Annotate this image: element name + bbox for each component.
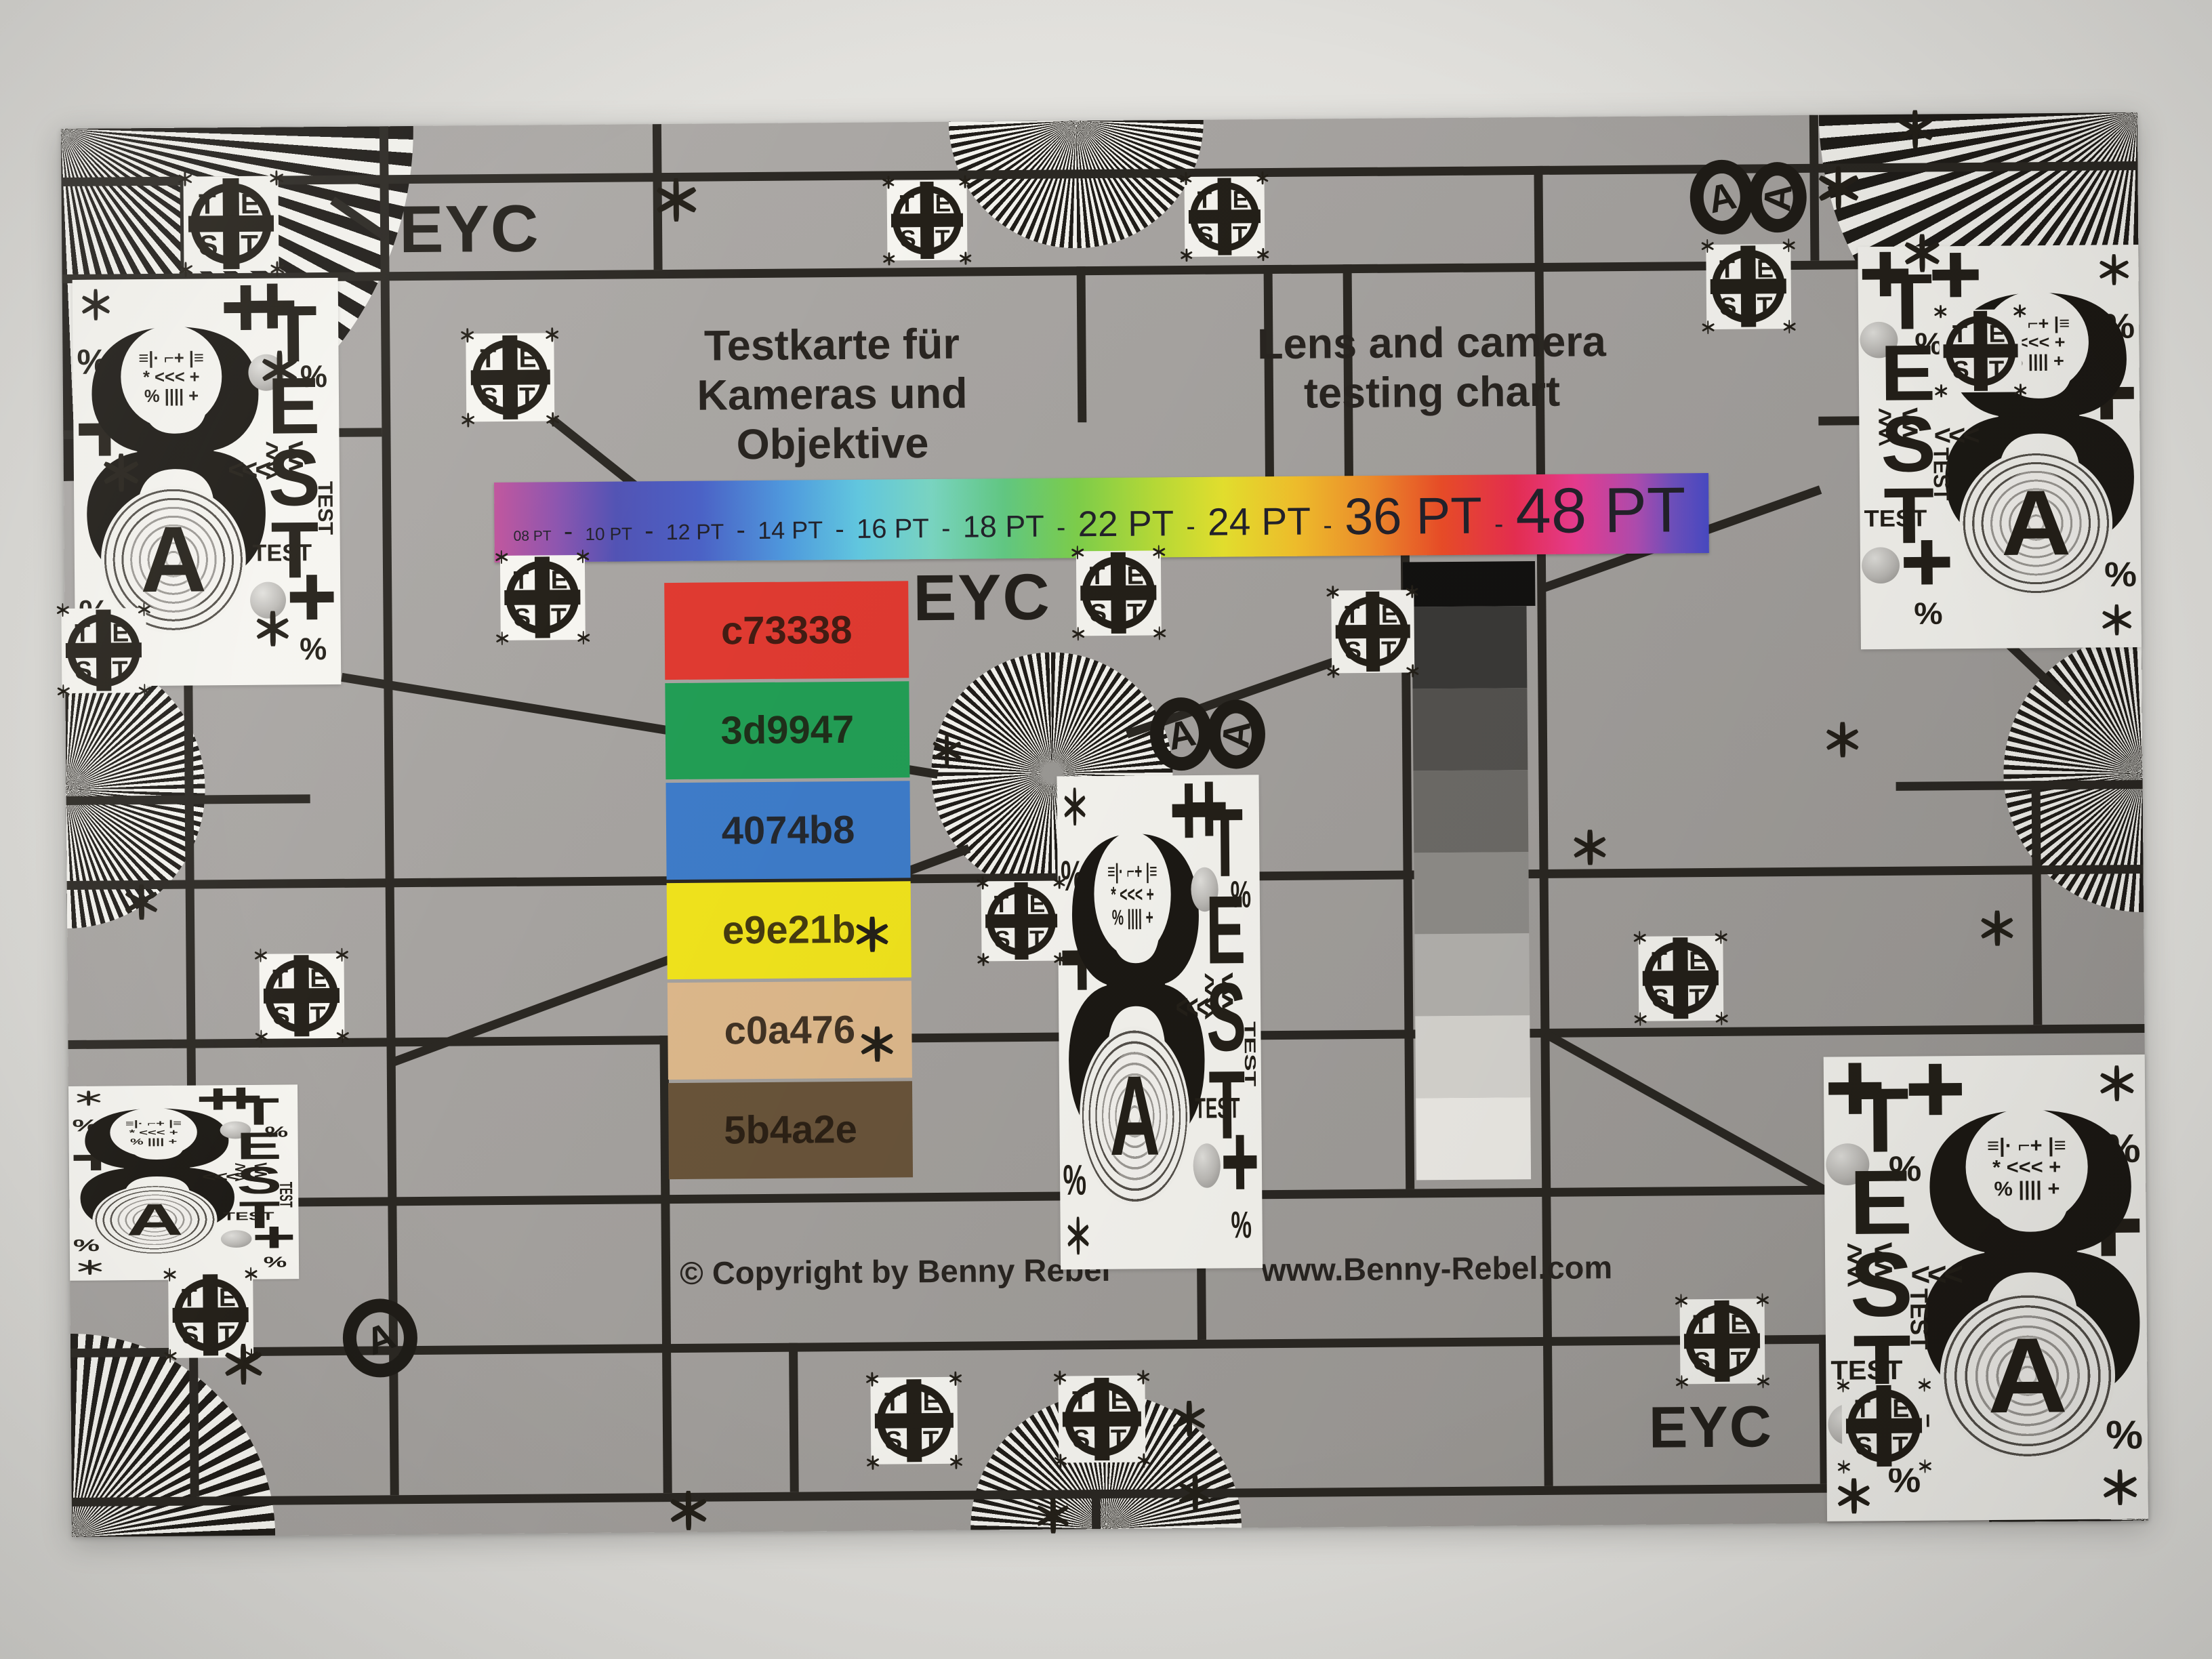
asterisk-mark [268,170,284,186]
letter-a: A [129,506,218,614]
logo-letter: S [1197,222,1214,249]
percent-mark: % [1231,1202,1252,1247]
asterisk-mark [1054,1454,1068,1469]
logo-letter: E [310,964,327,993]
siemens-fan-top-center [949,120,1204,249]
logo-letter: E [1232,186,1248,213]
logo-letter: E [518,344,536,373]
grid-line [789,1343,799,1492]
gray-sphere [1193,1143,1221,1188]
test-circle-logo: T E S T [1939,309,2022,392]
asterisk-mark [495,550,508,564]
asterisk-mark [1071,627,1085,640]
asterisk-mark [1071,546,1084,559]
asterisk-mark [960,252,972,265]
down-arrows: vvv [1217,972,1240,1012]
mini-eight-top-right: A A [1689,159,1807,236]
pt-label: 22 PT [1078,503,1174,545]
resolution-block-center: % % 8 ≡|· ⌐+ |≡ * <<< + % |||| + A <<< %… [1057,775,1263,1269]
logo-letter: E [241,188,260,220]
color-swatch-brown: 5b4a2e [668,1081,913,1179]
logo-letter: T [1029,926,1044,954]
logo-letter: T [75,618,90,647]
asterisk-mark [56,603,69,617]
asterisk-mark [335,1029,349,1043]
test-column: % T E S T ^^^ vvv TEST TEST % [218,1084,299,1279]
letter-a: A [117,1193,193,1246]
logo-letter: T [310,1001,326,1030]
logo-letter: T [1072,1387,1088,1416]
pt-label: 08 PT [514,528,552,544]
resolution-block: % % 8 ≡|· ⌐+ |≡ * <<< + % |||| + A <<< %… [1858,245,2142,649]
plus-mark [1904,540,1950,585]
asterisk-mark [124,884,159,920]
asterisk-mark [1674,1294,1687,1307]
asterisk-mark [577,631,590,644]
logo-letter: T [1855,1394,1870,1423]
logo-letter: S [1090,598,1107,627]
asterisk-mark [977,876,989,889]
logo-letter: E [1689,946,1706,975]
asterisk-mark [163,1349,177,1363]
asterisk-mark [1825,722,1860,757]
asterisk-mark [2013,304,2027,318]
logo-letter: S [900,225,916,253]
test-circle-logo: T E S T [1331,590,1414,673]
up-arrows: ^^^ [224,1163,249,1180]
asterisk-mark [1036,1498,1071,1533]
asterisk-mark [859,1026,895,1061]
logo-letter: T [1952,320,1968,348]
concentric-rings-target: A [1959,449,2113,597]
asterisk-mark [949,1455,963,1469]
percent-mark: % [1914,595,1943,632]
test-circle-logo: T E S T [1076,550,1161,636]
up-arrows: ^^^ [1195,972,1218,1015]
asterisk-mark [102,453,140,491]
logo-letter: T [112,655,127,684]
logo-letter: S [1652,983,1668,1012]
asterisk-mark [1896,110,1934,148]
asterisk-mark [1327,665,1340,678]
logo-letter: E [1381,600,1398,628]
asterisk-mark [163,1268,176,1282]
grayscale-step [1413,770,1528,853]
test-circle-logo: T E S T [1679,1298,1765,1384]
grid-line [1077,266,1087,422]
down-arrows: vvv [249,1162,274,1179]
asterisk-mark [244,1267,258,1281]
asterisk-mark [254,1030,268,1044]
pt-label: 18 PT [962,509,1044,545]
logo-letter: T [241,229,258,262]
asterisk-mark [178,171,193,186]
asterisk-mark [1152,545,1166,558]
logo-letter: E [550,565,567,594]
asterisk-mark [1782,239,1795,252]
resolution-block: % % 8 ≡|· ⌐+ |≡ * <<< + % |||| + A <<< %… [1057,775,1263,1269]
asterisk-mark [654,178,698,222]
asterisk-mark [1675,1375,1688,1389]
asterisk-mark [1918,1459,1931,1473]
grayscale-step [1416,1097,1531,1180]
logo-letter: T [199,188,216,220]
logo-letter: T [480,344,496,374]
logo-letter: T [519,382,535,412]
grayscale-step [1412,606,1527,689]
test-rotated-label: TEST [1928,447,1954,501]
test-circle-logo: T E S T [870,1377,958,1465]
asterisk-mark [1917,1378,1931,1391]
logo-letter: T [1757,291,1772,321]
logo-letter: T [900,190,915,218]
letter-a: A [1990,470,2083,577]
asterisk-mark [669,1491,708,1530]
letter-a: A [1101,1050,1169,1182]
asterisk-mark [576,550,590,563]
pt-label: 48 PT [1515,473,1686,548]
asterisk-mark [1980,910,2015,945]
asterisk-mark [461,413,475,427]
test-circle-logo: T E S T [1706,244,1791,329]
logo-letter: T [1197,186,1212,214]
test-circle-logo: T E S T [61,608,146,693]
logo-letter: T [182,1283,197,1312]
logo-letter: T [272,964,288,993]
asterisk-mark [255,611,290,646]
logo-letter: E [1110,1386,1128,1416]
asterisk-mark [1053,876,1066,888]
eyc-label-top-left: EYC [399,190,540,268]
logo-letter: T [1089,560,1105,590]
logo-letter: S [1072,1425,1090,1454]
photo-lens-test-chart: 08 PT - 10 PT - 12 PT - 14 PT - 16 PT - … [0,0,2212,1659]
asterisk-mark [1715,1012,1728,1025]
test-column: % T E S T ^^^ vvv TEST TEST % [1189,775,1263,1269]
asterisk-mark [1755,1293,1769,1307]
gray-sphere [221,1230,252,1248]
logo-letter: E [935,190,951,218]
plus-mark [255,1227,293,1248]
asterisk-mark [1837,1460,1850,1473]
logo-letter: E [922,1387,940,1417]
copyright-url: www.Benny-Rebel.com [1261,1248,1612,1288]
up-arrows: ^^^ [253,441,283,476]
asterisk-mark [1934,305,1948,319]
logo-letter: T [513,565,529,594]
asterisk-mark [223,1344,264,1385]
asterisk-mark [1054,953,1067,966]
rainbow-font-size-bar: 08 PT - 10 PT - 12 PT - 14 PT - 16 PT - … [494,473,1709,562]
logo-letter: S [884,1426,902,1456]
logo-letter: T [1693,1309,1708,1338]
test-circle-logo: T E S T [1638,935,1723,1021]
down-arrows: vvv [1896,407,1927,441]
concentric-rings-target: A [1079,1026,1190,1206]
asterisk-mark [1406,585,1419,598]
asterisk-mark [1837,1478,1872,1513]
logo-letter: E [219,1283,236,1312]
down-arrows: vvv [282,441,312,474]
asterisk-mark [1782,320,1796,333]
mini-circle-a-bottom-left: A [340,1290,422,1386]
logo-letter: S [273,1001,290,1030]
asterisk-mark [1406,664,1420,678]
logo-letter: T [1689,983,1704,1012]
resolution-block-bottom-left: % % 8 ≡|· ⌐+ |≡ * <<< + % |||| + A <<< %… [68,1084,299,1280]
test-circle-logo: T E S T [887,180,968,261]
asterisk-mark [269,261,285,276]
test-rotated-label: TEST [1240,1021,1259,1086]
pt-label: 14 PT [758,516,823,545]
color-swatch-green: 3d9947 [665,681,909,779]
asterisk-mark [1172,1401,1207,1436]
logo-letter: T [923,1426,939,1456]
logo-letter: T [1719,254,1735,283]
fine-pattern-circle: ≡|· ⌐+ |≡ * <<< + % |||| + [121,325,222,428]
asterisk-mark [1836,1378,1849,1392]
logo-letter: T [551,602,567,632]
plus-mark [290,575,334,620]
logo-letter: T [1731,1346,1746,1375]
logo-letter: T [1233,221,1248,249]
color-swatch-blue: 4074b8 [665,781,910,879]
grayscale-step [1415,1015,1530,1098]
logo-letter: E [1126,560,1143,590]
logo-letter: T [1345,600,1360,629]
asterisk-mark [1178,1475,1213,1511]
copyright-text: © Copyright by Benny Rebel [680,1251,1111,1292]
logo-letter: S [182,1320,199,1349]
test-small-label: TEST [252,539,312,567]
fine-pattern-circle: ≡|· ⌐+ |≡ * <<< + % |||| + [1965,1107,2088,1226]
up-arrows: ^^^ [1864,407,1896,443]
logo-letter: S [199,230,218,262]
pt-label: 24 PT [1208,499,1311,545]
asterisk-mark [2014,384,2028,397]
eyc-label-bottom-right: EYC [1649,1393,1774,1461]
asterisk-mark [56,684,70,698]
asterisk-mark [865,1372,880,1387]
test-circle-logo: T E S T [1058,1376,1145,1463]
test-small-label: TEST [1195,1092,1240,1126]
test-circle-logo: T E S T [466,333,554,422]
pt-label: 16 PT [857,514,929,545]
logo-letter: T [884,1388,901,1418]
asterisk-mark [1257,248,1270,261]
asterisk-mark [1633,1012,1647,1026]
asterisk-mark [260,350,298,388]
logo-letter: T [935,225,950,253]
logo-letter: S [994,926,1010,954]
asterisk-mark [495,632,509,645]
concentric-rings-target: A [1940,1291,2116,1461]
asterisk-mark [882,176,895,188]
asterisk-mark [178,262,194,278]
asterisk-mark [1136,1454,1151,1468]
asterisk-mark [1903,234,1941,272]
resolution-block-top-right: % % 8 ≡|· ⌐+ |≡ * <<< + % |||| + A <<< %… [1858,245,2142,649]
grayscale-step [1414,852,1529,935]
letter-a: A [1974,1314,2081,1438]
color-swatch-column: c73338 3d9947 4074b8 e9e21b c0a476 5b4a2… [664,581,913,1179]
title-english: Lens and camera testing chart [1228,317,1635,419]
test-circle-logo: T E S T [259,953,344,1038]
asterisk-mark [546,412,560,426]
grayscale-step [1414,934,1530,1017]
asterisk-mark [1701,321,1715,334]
asterisk-mark [1153,626,1166,640]
pt-label: 10 PT [585,523,632,545]
asterisk-mark [1714,930,1727,944]
logo-letter: S [1694,1347,1711,1376]
grayscale-step [1412,688,1528,771]
asterisk-mark [959,175,972,188]
mini-eight-center: A A [1150,697,1266,773]
grid-line [1092,1490,1101,1529]
logo-letter: S [1856,1431,1872,1460]
grayscale-step-wedge [1412,606,1531,1180]
down-arrows: vvv [1866,1242,1903,1280]
asterisk-mark [1256,171,1269,184]
asterisk-mark [1179,172,1192,185]
test-circle-logo: T E S T [183,176,279,272]
logo-letter: S [1345,636,1361,665]
fine-pattern-circle: ≡|· ⌐+ |≡ * <<< + % |||| + [1094,832,1172,957]
asterisk-mark [137,602,150,616]
test-circle-logo: T E S T [499,555,585,640]
pt-label: 36 PT [1345,487,1482,547]
asterisk-mark [1053,1371,1067,1385]
logo-letter: T [1381,636,1397,665]
asterisk-mark [1700,239,1714,253]
resolution-block: % % 8 ≡|· ⌐+ |≡ * <<< + % |||| + A <<< %… [68,1084,299,1280]
logo-letter: S [480,383,498,413]
asterisk-mark [949,1372,963,1386]
title-german: Testkarte für Kameras und Objektive [621,319,1043,471]
logo-letter: E [1988,319,2005,348]
logo-letter: E [112,618,129,647]
test-rotated-label: TEST [275,1182,296,1208]
asterisk-mark [138,684,151,697]
asterisk-mark [460,328,474,342]
asterisk-mark [1326,586,1340,599]
logo-letter: S [75,655,91,684]
plus-mark [1223,1135,1257,1189]
asterisk-mark [335,948,348,962]
logo-letter: S [1952,356,1969,384]
asterisk-mark [1633,931,1646,945]
logo-letter: T [1111,1424,1127,1454]
percent-mark: % [264,1253,287,1271]
gray-sphere [1862,547,1900,583]
asterisk-mark [1180,249,1193,262]
logo-letter: S [1719,291,1736,321]
asterisk-mark [1572,829,1607,865]
asterisk-mark [931,735,962,766]
test-chart-card: 08 PT - 10 PT - 12 PT - 14 PT - 16 PT - … [61,112,2148,1537]
test-small-label: TEST [223,1210,274,1223]
asterisk-mark [1136,1370,1151,1385]
test-rotated-label: TEST [1904,1288,1933,1350]
test-circle-logo: T E S T [981,881,1062,962]
asterisk-mark [545,328,559,342]
pt-label: 12 PT [666,519,724,545]
logo-letter: E [1730,1309,1747,1338]
test-rotated-label: TEST [313,481,337,535]
asterisk-mark [253,949,267,962]
color-swatch-red: c73338 [664,581,909,679]
eyc-label-center: EYC [913,560,1051,636]
percent-mark: % [300,630,327,667]
asterisk-mark [1756,1374,1769,1388]
diagonal-line [1543,1030,1825,1193]
logo-letter: E [1892,1393,1909,1422]
logo-letter: T [1127,598,1143,627]
asterisk-mark [1935,384,1948,398]
logo-letter: T [1652,946,1667,975]
test-small-label: TEST [1864,506,1927,533]
logo-letter: T [994,890,1009,918]
up-arrows: ^^^ [1831,1242,1868,1283]
logo-letter: T [1989,356,2005,384]
asterisk-mark [866,1456,880,1470]
test-circle-logo: T E S T [1841,1383,1927,1469]
asterisk-mark [977,954,989,966]
logo-letter: T [1893,1431,1908,1460]
test-circle-logo: T E S T [1184,176,1265,257]
logo-letter: E [1029,890,1046,918]
logo-letter: S [514,602,531,632]
grayscale-black-band [1403,561,1536,607]
asterisk-mark [882,253,895,266]
asterisk-mark [1816,166,1860,210]
logo-letter: E [1757,254,1774,283]
asterisk-mark [855,916,890,951]
